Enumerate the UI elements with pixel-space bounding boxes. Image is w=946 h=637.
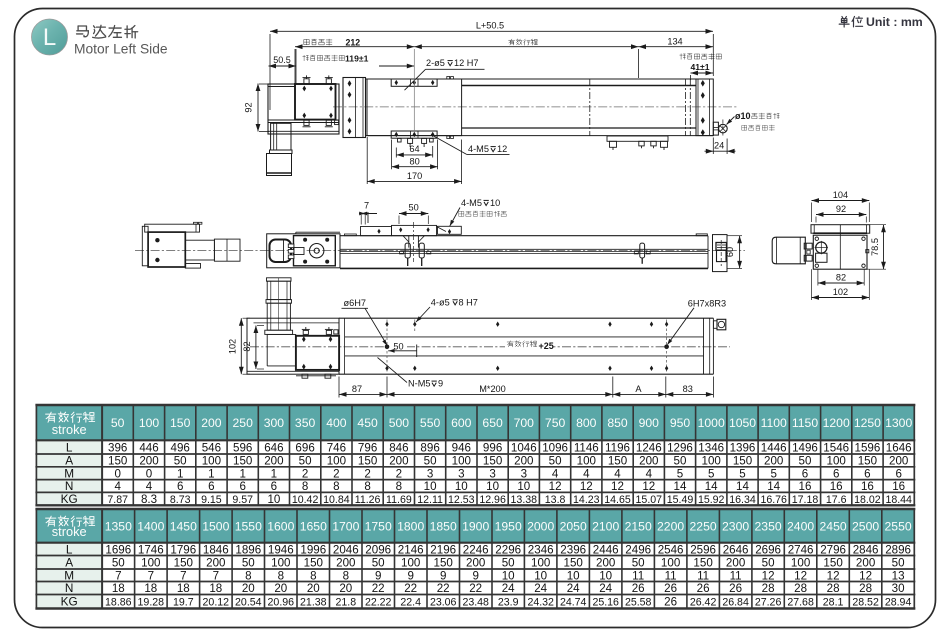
svg-text:L: L <box>66 542 73 556</box>
svg-text:M*200: M*200 <box>479 384 506 394</box>
svg-text:50: 50 <box>762 557 775 570</box>
svg-text:2496: 2496 <box>625 543 651 556</box>
svg-text:6: 6 <box>177 480 183 493</box>
svg-text:1: 1 <box>177 467 183 480</box>
svg-text:2: 2 <box>364 467 370 480</box>
svg-text:2150: 2150 <box>625 519 652 533</box>
svg-text:150: 150 <box>733 455 752 468</box>
svg-text:10: 10 <box>502 570 515 583</box>
svg-text:150: 150 <box>108 455 127 468</box>
svg-text:5: 5 <box>708 467 714 480</box>
svg-text:50: 50 <box>892 557 905 570</box>
svg-text:896: 896 <box>420 441 439 454</box>
svg-text:28: 28 <box>794 582 807 595</box>
svg-text:24.32: 24.32 <box>527 597 554 609</box>
svg-text:12: 12 <box>827 570 840 583</box>
svg-text:78.5: 78.5 <box>870 238 880 256</box>
svg-text:1400: 1400 <box>137 519 164 533</box>
svg-text:6: 6 <box>208 480 214 493</box>
svg-text:1600: 1600 <box>267 519 294 533</box>
svg-text:Motor Left Side: Motor Left Side <box>74 42 168 57</box>
svg-text:1800: 1800 <box>397 519 424 533</box>
svg-text:350: 350 <box>295 416 316 430</box>
svg-text:2746: 2746 <box>788 543 814 556</box>
svg-text:200: 200 <box>466 557 485 570</box>
svg-text:4: 4 <box>583 467 590 480</box>
svg-text:9: 9 <box>440 570 446 583</box>
svg-text:10: 10 <box>490 198 500 208</box>
svg-text:26: 26 <box>632 582 645 595</box>
svg-text:150: 150 <box>608 455 627 468</box>
svg-text:1300: 1300 <box>885 416 912 430</box>
svg-text:14: 14 <box>767 480 780 493</box>
svg-text:7: 7 <box>180 570 186 583</box>
svg-text:2396: 2396 <box>560 543 586 556</box>
svg-text:12 H7: 12 H7 <box>454 58 479 68</box>
svg-text:1046: 1046 <box>511 441 537 454</box>
svg-text:4: 4 <box>552 467 559 480</box>
svg-text:8: 8 <box>396 480 402 493</box>
svg-text:64: 64 <box>409 144 419 154</box>
svg-text:5: 5 <box>677 467 683 480</box>
svg-text:11: 11 <box>665 570 677 583</box>
svg-text:1246: 1246 <box>636 441 662 454</box>
svg-text:2596: 2596 <box>690 543 716 556</box>
svg-text:1250: 1250 <box>854 416 881 430</box>
svg-text:1746: 1746 <box>138 543 164 556</box>
svg-text:24: 24 <box>534 582 547 595</box>
svg-text:28: 28 <box>859 582 872 595</box>
svg-text:1750: 1750 <box>365 519 392 533</box>
svg-text:650: 650 <box>482 416 503 430</box>
svg-text:19.7: 19.7 <box>173 597 194 609</box>
svg-text:7: 7 <box>213 570 219 583</box>
svg-text:7: 7 <box>148 570 154 583</box>
svg-text:18: 18 <box>112 582 125 595</box>
svg-text:A: A <box>635 384 642 394</box>
svg-text:83: 83 <box>683 384 693 394</box>
svg-text:2196: 2196 <box>430 543 456 556</box>
svg-text:L: L <box>43 24 56 51</box>
svg-text:20.54: 20.54 <box>235 597 262 609</box>
svg-text:100: 100 <box>401 557 420 570</box>
svg-text:A: A <box>65 556 73 570</box>
svg-text:50: 50 <box>549 455 562 468</box>
svg-text:18: 18 <box>177 582 190 595</box>
svg-text:2046: 2046 <box>333 543 359 556</box>
svg-text:KG: KG <box>61 492 78 506</box>
svg-text:16: 16 <box>799 480 812 493</box>
svg-text:22.4: 22.4 <box>400 597 421 609</box>
svg-text:2896: 2896 <box>885 543 911 556</box>
svg-text:100: 100 <box>827 455 846 468</box>
svg-text:200: 200 <box>389 455 408 468</box>
svg-text:8: 8 <box>364 480 370 493</box>
svg-text:22.22: 22.22 <box>365 597 392 609</box>
svg-text:2300: 2300 <box>722 519 749 533</box>
svg-text:21.8: 21.8 <box>335 597 356 609</box>
svg-text:100: 100 <box>661 557 680 570</box>
svg-text:21.38: 21.38 <box>300 597 327 609</box>
svg-text:50: 50 <box>111 416 125 430</box>
svg-text:50: 50 <box>408 203 418 213</box>
svg-text:396: 396 <box>108 441 127 454</box>
svg-text:16: 16 <box>892 480 905 493</box>
svg-text:150: 150 <box>858 455 877 468</box>
svg-text:1296: 1296 <box>667 441 693 454</box>
svg-text:N-M5: N-M5 <box>408 379 430 389</box>
svg-text:22: 22 <box>469 582 482 595</box>
svg-text:100: 100 <box>271 557 290 570</box>
svg-text:400: 400 <box>326 416 347 430</box>
svg-text:3: 3 <box>489 467 495 480</box>
svg-text:10: 10 <box>517 480 530 493</box>
svg-text:80: 80 <box>409 156 419 166</box>
svg-text:4: 4 <box>614 467 621 480</box>
svg-text:23.9: 23.9 <box>498 597 519 609</box>
svg-text:134: 134 <box>667 36 682 46</box>
svg-text:200: 200 <box>856 557 875 570</box>
svg-text:28.52: 28.52 <box>852 597 879 609</box>
svg-text:50: 50 <box>632 557 645 570</box>
svg-text:18: 18 <box>144 582 157 595</box>
svg-text:150: 150 <box>170 416 191 430</box>
svg-text:23.48: 23.48 <box>462 597 489 609</box>
svg-text:20: 20 <box>307 582 320 595</box>
svg-text:2-ø5: 2-ø5 <box>426 58 445 68</box>
svg-text:12: 12 <box>497 144 507 154</box>
svg-text:7: 7 <box>115 570 121 583</box>
svg-text:1900: 1900 <box>462 519 489 533</box>
svg-text:496: 496 <box>171 441 190 454</box>
svg-text:2096: 2096 <box>365 543 391 556</box>
svg-text:2146: 2146 <box>398 543 424 556</box>
svg-text:2446: 2446 <box>593 543 619 556</box>
svg-text:102: 102 <box>228 339 238 354</box>
svg-text:1650: 1650 <box>300 519 327 533</box>
svg-text:26: 26 <box>729 582 742 595</box>
svg-text:2200: 2200 <box>657 519 684 533</box>
svg-text:13: 13 <box>892 570 905 583</box>
svg-text:100: 100 <box>327 455 346 468</box>
svg-text:1446: 1446 <box>761 441 787 454</box>
svg-text:8: 8 <box>278 570 284 583</box>
svg-text:6H7x8R3: 6H7x8R3 <box>688 298 726 308</box>
svg-text:28: 28 <box>762 582 775 595</box>
svg-text:12: 12 <box>580 480 593 493</box>
svg-text:26: 26 <box>664 582 677 595</box>
svg-text:L+50.5: L+50.5 <box>476 21 504 31</box>
svg-text:2646: 2646 <box>723 543 749 556</box>
svg-text:16: 16 <box>830 480 843 493</box>
svg-text:450: 450 <box>357 416 378 430</box>
svg-text:ø6H7: ø6H7 <box>344 298 366 308</box>
svg-text:20: 20 <box>339 582 352 595</box>
svg-text:200: 200 <box>514 455 533 468</box>
svg-text:82: 82 <box>836 272 846 282</box>
svg-text:250: 250 <box>233 416 254 430</box>
svg-text:20: 20 <box>242 582 255 595</box>
svg-text:1950: 1950 <box>495 519 522 533</box>
svg-text:87: 87 <box>352 384 362 394</box>
svg-text:2500: 2500 <box>852 519 879 533</box>
svg-text:50: 50 <box>502 557 515 570</box>
svg-text:26.84: 26.84 <box>722 597 749 609</box>
svg-text:4-M5: 4-M5 <box>461 198 482 208</box>
svg-text:2450: 2450 <box>820 519 847 533</box>
svg-text:22: 22 <box>437 582 450 595</box>
svg-text:796: 796 <box>358 441 377 454</box>
svg-text:1346: 1346 <box>698 441 724 454</box>
svg-text:92: 92 <box>836 204 846 214</box>
svg-text:19.28: 19.28 <box>138 597 165 609</box>
svg-text:10: 10 <box>486 480 499 493</box>
svg-text:1896: 1896 <box>235 543 261 556</box>
svg-text:100: 100 <box>452 455 471 468</box>
svg-text:2550: 2550 <box>885 519 912 533</box>
svg-text:8: 8 <box>245 570 251 583</box>
svg-text:4: 4 <box>114 480 121 493</box>
svg-text:1196: 1196 <box>605 441 630 454</box>
svg-text:12: 12 <box>794 570 807 583</box>
svg-text:200: 200 <box>889 455 908 468</box>
svg-text:22: 22 <box>372 582 385 595</box>
svg-text:2696: 2696 <box>755 543 781 556</box>
svg-text:8: 8 <box>333 480 339 493</box>
svg-text:5: 5 <box>770 467 776 480</box>
svg-text:100: 100 <box>577 455 596 468</box>
svg-text:150: 150 <box>304 557 323 570</box>
svg-text:150: 150 <box>174 557 193 570</box>
svg-text:11: 11 <box>697 570 709 583</box>
svg-text:14: 14 <box>674 480 687 493</box>
svg-text:stroke: stroke <box>52 422 87 437</box>
svg-text:100: 100 <box>141 557 160 570</box>
svg-text:0: 0 <box>114 467 120 480</box>
svg-text:25.58: 25.58 <box>625 597 652 609</box>
svg-text:696: 696 <box>295 441 314 454</box>
svg-text:2346: 2346 <box>528 543 554 556</box>
svg-text:28: 28 <box>827 582 840 595</box>
svg-text:2846: 2846 <box>853 543 879 556</box>
svg-text:6: 6 <box>833 467 839 480</box>
svg-text:546: 546 <box>202 441 221 454</box>
svg-text:700: 700 <box>514 416 535 430</box>
svg-text:2: 2 <box>333 467 339 480</box>
svg-text:11: 11 <box>730 570 742 583</box>
svg-text:24: 24 <box>502 582 515 595</box>
svg-text:50: 50 <box>674 455 687 468</box>
svg-text:ø10: ø10 <box>735 111 751 121</box>
svg-text:50: 50 <box>174 455 187 468</box>
svg-text:946: 946 <box>452 441 471 454</box>
svg-text:550: 550 <box>420 416 441 430</box>
svg-text:50: 50 <box>242 557 255 570</box>
svg-text:24: 24 <box>714 140 724 150</box>
svg-text:6: 6 <box>864 467 870 480</box>
svg-text:82: 82 <box>242 341 252 351</box>
svg-text:4-M5: 4-M5 <box>468 144 489 154</box>
svg-text:1146: 1146 <box>574 441 599 454</box>
svg-text:1500: 1500 <box>202 519 229 533</box>
svg-text:24: 24 <box>567 582 580 595</box>
svg-text:3: 3 <box>521 467 527 480</box>
svg-text:50: 50 <box>799 455 812 468</box>
svg-text:9: 9 <box>407 570 413 583</box>
svg-text:28.1: 28.1 <box>823 597 844 609</box>
svg-text:6: 6 <box>802 467 808 480</box>
svg-text:1200: 1200 <box>823 416 850 430</box>
svg-text:2246: 2246 <box>463 543 489 556</box>
svg-text:14: 14 <box>736 480 749 493</box>
svg-text:200: 200 <box>336 557 355 570</box>
svg-text:104: 104 <box>833 190 848 200</box>
svg-text:10: 10 <box>455 480 468 493</box>
svg-text:1796: 1796 <box>170 543 196 556</box>
svg-text:200: 200 <box>764 455 783 468</box>
svg-text:1: 1 <box>271 467 277 480</box>
svg-text:1100: 1100 <box>761 416 787 430</box>
svg-text:24: 24 <box>599 582 612 595</box>
svg-text:18: 18 <box>209 582 222 595</box>
svg-text:150: 150 <box>823 557 842 570</box>
svg-text:200: 200 <box>726 557 745 570</box>
svg-text:446: 446 <box>139 441 158 454</box>
svg-text:2400: 2400 <box>787 519 814 533</box>
svg-text:2: 2 <box>302 467 308 480</box>
svg-text:150: 150 <box>564 557 583 570</box>
svg-text:1996: 1996 <box>300 543 326 556</box>
svg-text:200: 200 <box>264 455 283 468</box>
svg-text:2546: 2546 <box>658 543 684 556</box>
svg-text:996: 996 <box>483 441 502 454</box>
svg-text:200: 200 <box>139 455 158 468</box>
svg-text:12: 12 <box>549 480 562 493</box>
svg-text:10: 10 <box>534 570 547 583</box>
svg-text:1850: 1850 <box>430 519 457 533</box>
svg-text:2: 2 <box>396 467 402 480</box>
svg-text:4: 4 <box>146 480 153 493</box>
svg-text:1846: 1846 <box>203 543 229 556</box>
svg-text:8: 8 <box>343 570 349 583</box>
svg-text:50: 50 <box>372 557 385 570</box>
svg-text:Unit : mm: Unit : mm <box>866 15 923 29</box>
svg-text:20.96: 20.96 <box>268 597 295 609</box>
svg-text:1150: 1150 <box>792 416 818 430</box>
svg-text:30: 30 <box>892 582 905 595</box>
svg-text:170: 170 <box>407 171 422 181</box>
svg-text:1000: 1000 <box>698 416 725 430</box>
svg-text:0: 0 <box>146 467 152 480</box>
svg-text:20: 20 <box>274 582 287 595</box>
svg-text:N: N <box>65 581 74 595</box>
svg-text:2296: 2296 <box>495 543 521 556</box>
svg-text:26.42: 26.42 <box>690 597 717 609</box>
svg-text:28.94: 28.94 <box>885 597 912 609</box>
svg-text:50: 50 <box>299 455 312 468</box>
svg-text:500: 500 <box>389 416 410 430</box>
svg-text:1946: 1946 <box>268 543 294 556</box>
svg-text:1550: 1550 <box>235 519 262 533</box>
svg-text:746: 746 <box>327 441 346 454</box>
svg-text:4-ø5: 4-ø5 <box>431 297 450 307</box>
svg-text:850: 850 <box>607 416 628 430</box>
svg-text:200: 200 <box>639 455 658 468</box>
svg-text:1696: 1696 <box>105 543 131 556</box>
svg-text:300: 300 <box>264 416 285 430</box>
svg-text:24.74: 24.74 <box>560 597 587 609</box>
svg-text:3: 3 <box>458 467 464 480</box>
svg-text:9: 9 <box>375 570 381 583</box>
svg-text:L: L <box>66 440 73 454</box>
svg-text:100: 100 <box>139 416 160 430</box>
svg-text:1700: 1700 <box>332 519 359 533</box>
svg-text:10: 10 <box>599 570 612 583</box>
svg-text:10: 10 <box>567 570 580 583</box>
svg-text:7: 7 <box>364 200 369 210</box>
svg-text:200: 200 <box>596 557 615 570</box>
svg-text:119±1: 119±1 <box>345 54 369 64</box>
svg-text:6: 6 <box>271 480 277 493</box>
svg-text:26: 26 <box>697 582 710 595</box>
svg-text:1350: 1350 <box>105 519 132 533</box>
svg-text:4: 4 <box>646 467 653 480</box>
svg-text:11: 11 <box>632 570 644 583</box>
svg-text:14: 14 <box>705 480 718 493</box>
svg-text:18.86: 18.86 <box>105 597 132 609</box>
svg-text:8 H7: 8 H7 <box>459 297 478 307</box>
svg-text:9: 9 <box>438 379 443 389</box>
svg-text:102: 102 <box>833 287 848 297</box>
svg-text:150: 150 <box>693 557 712 570</box>
svg-text:1096: 1096 <box>542 441 568 454</box>
svg-text:12: 12 <box>642 480 655 493</box>
svg-text:2250: 2250 <box>690 519 717 533</box>
svg-text:212: 212 <box>346 37 361 47</box>
svg-text:22: 22 <box>404 582 417 595</box>
svg-text:27.26: 27.26 <box>755 597 782 609</box>
svg-text:1496: 1496 <box>792 441 818 454</box>
svg-text:100: 100 <box>531 557 550 570</box>
svg-text:750: 750 <box>545 416 566 430</box>
svg-text:1396: 1396 <box>730 441 756 454</box>
svg-text:200: 200 <box>201 416 222 430</box>
svg-text:150: 150 <box>233 455 252 468</box>
svg-text:KG: KG <box>61 595 78 609</box>
svg-text:1450: 1450 <box>170 519 197 533</box>
svg-text:1646: 1646 <box>886 441 912 454</box>
svg-text:60: 60 <box>725 247 735 257</box>
svg-text:20.12: 20.12 <box>203 597 230 609</box>
svg-text:25.16: 25.16 <box>592 597 619 609</box>
svg-text:2796: 2796 <box>820 543 846 556</box>
svg-text:1: 1 <box>208 467 214 480</box>
svg-text:9: 9 <box>472 570 478 583</box>
svg-text:100: 100 <box>702 455 721 468</box>
svg-text:23.06: 23.06 <box>430 597 457 609</box>
svg-text:12: 12 <box>611 480 624 493</box>
svg-text:27.68: 27.68 <box>787 597 814 609</box>
svg-text:800: 800 <box>576 416 597 430</box>
svg-text:8: 8 <box>302 480 308 493</box>
svg-text:6: 6 <box>239 480 245 493</box>
svg-text:150: 150 <box>483 455 502 468</box>
svg-text:10: 10 <box>424 480 437 493</box>
svg-text:1546: 1546 <box>823 441 849 454</box>
svg-text:+25: +25 <box>539 341 554 351</box>
svg-text:8: 8 <box>310 570 316 583</box>
svg-text:50: 50 <box>424 455 437 468</box>
